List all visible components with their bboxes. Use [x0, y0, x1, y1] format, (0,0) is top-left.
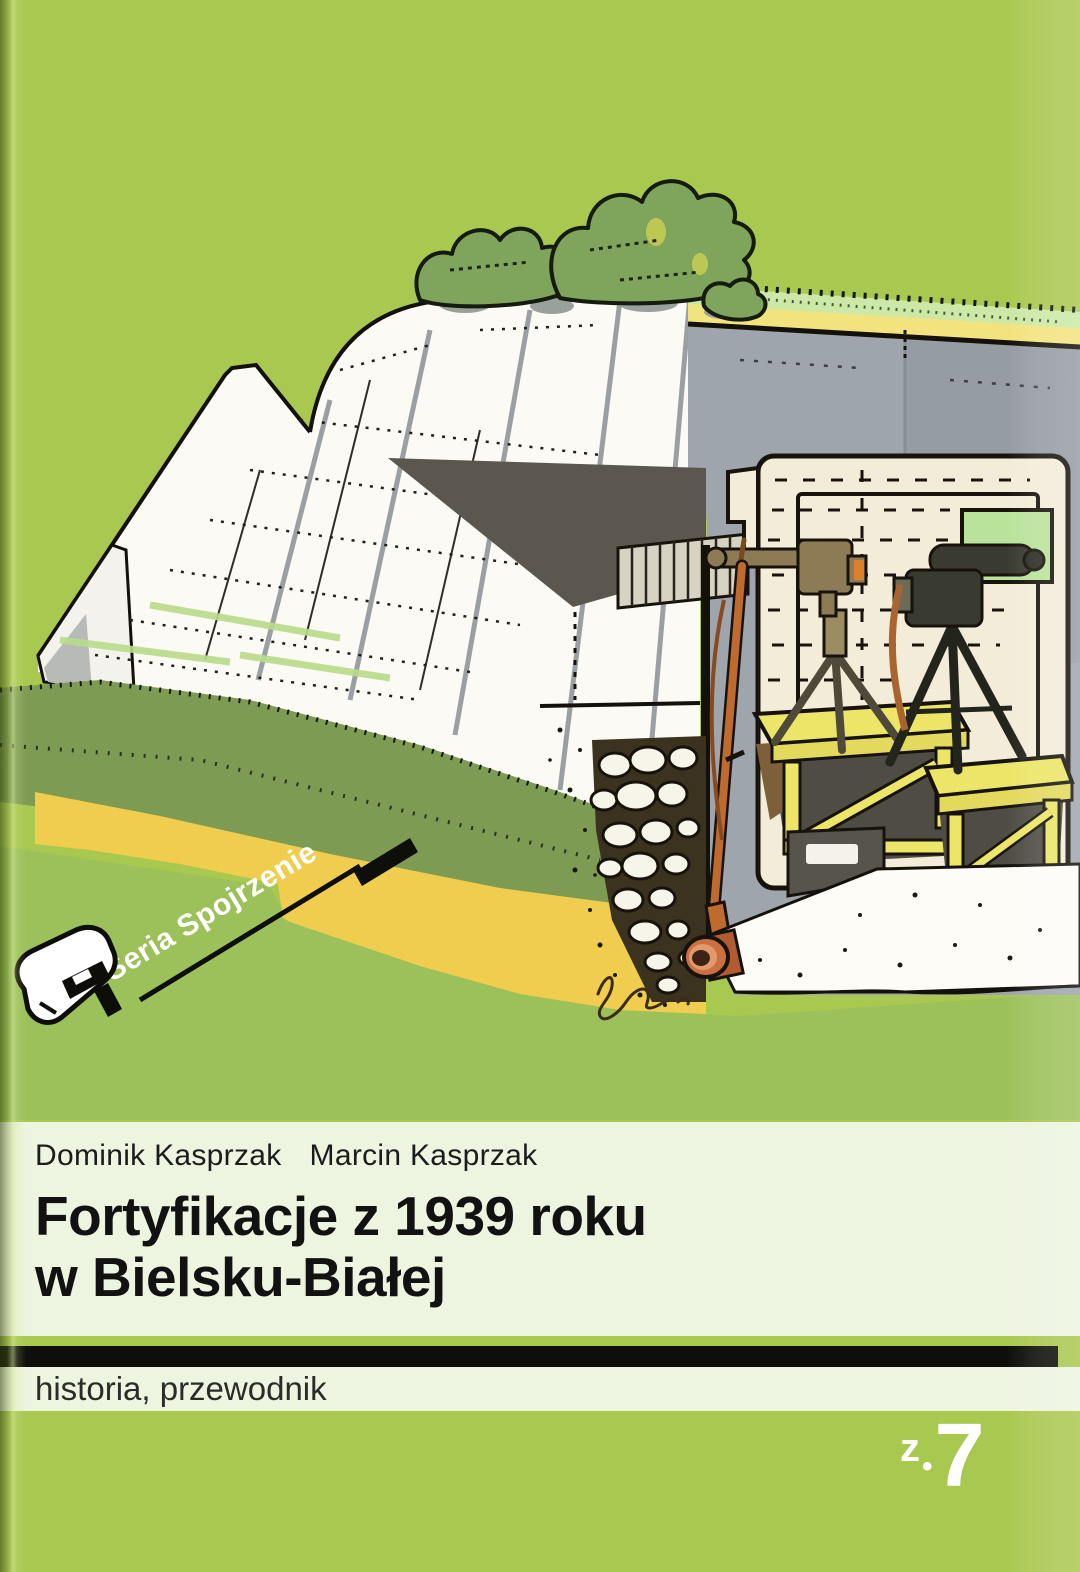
- title-panel: Dominik KasprzakMarcin Kasprzak Fortyfik…: [0, 1122, 1080, 1336]
- volume-prefix: z: [900, 1428, 920, 1468]
- volume-number: 7: [935, 1420, 985, 1492]
- category-label: historia, przewodnik: [35, 1370, 327, 1407]
- bunker-cutaway-illustration: Seria Spojrzenie: [0, 0, 1080, 1120]
- book-cover: Seria Spojrzenie Dominik KasprzakMarcin …: [0, 0, 1080, 1572]
- author-1: Dominik Kasprzak: [35, 1139, 282, 1172]
- title-line-1: Fortyfikacje z 1939 roku: [35, 1186, 1080, 1247]
- authors-line: Dominik KasprzakMarcin Kasprzak: [35, 1138, 1080, 1174]
- divider-black-bar: [0, 1346, 1058, 1367]
- volume-mark: z • 7: [900, 1420, 985, 1492]
- stairs: [618, 534, 748, 608]
- volume-separator-dot: •: [922, 1452, 933, 1482]
- author-2: Marcin Kasprzak: [310, 1139, 538, 1172]
- category-band: historia, przewodnik: [0, 1367, 1080, 1411]
- book-title: Fortyfikacje z 1939 roku w Bielsku-Białe…: [35, 1186, 1080, 1307]
- title-line-2: w Bielsku-Białej: [35, 1247, 1080, 1308]
